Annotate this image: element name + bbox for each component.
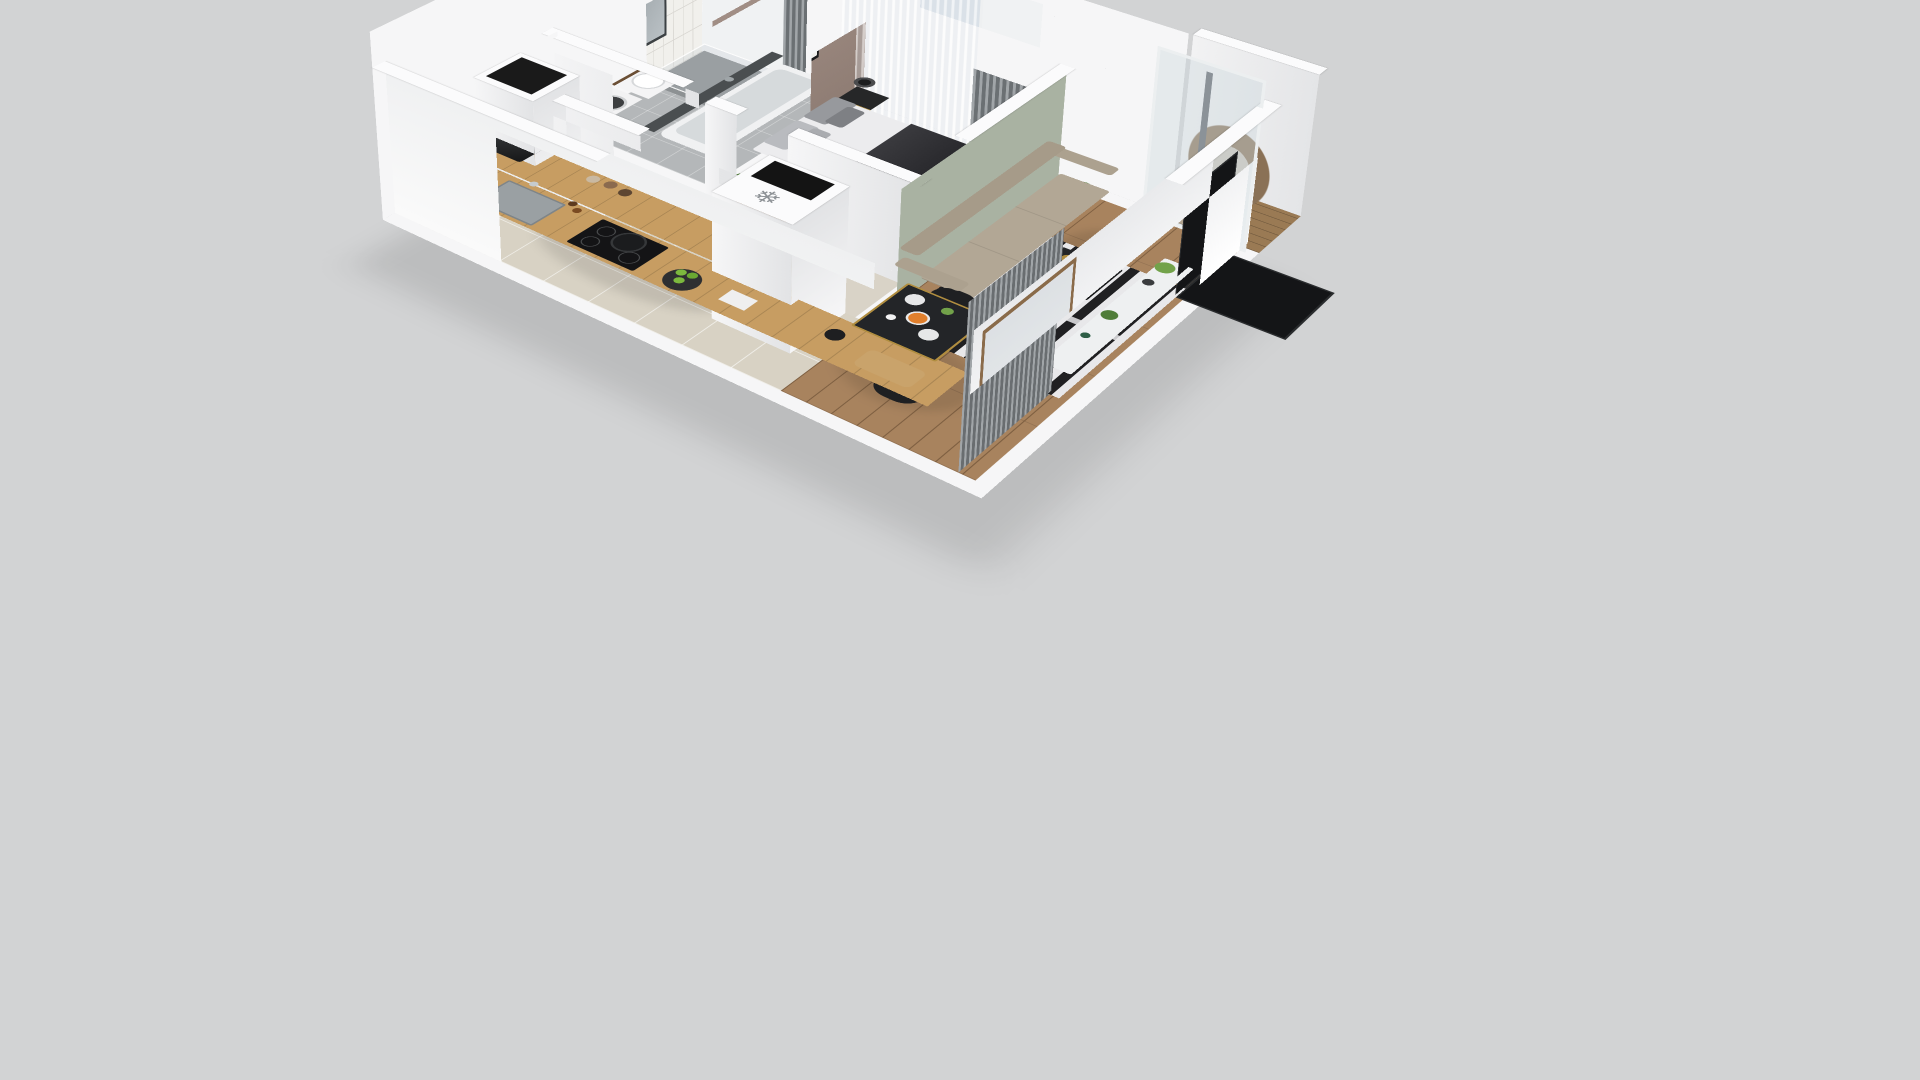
floor-plan-render: ❄ [0, 0, 1920, 1080]
wall-art-small [823, 0, 850, 33]
wall-art-large [756, 0, 821, 95]
